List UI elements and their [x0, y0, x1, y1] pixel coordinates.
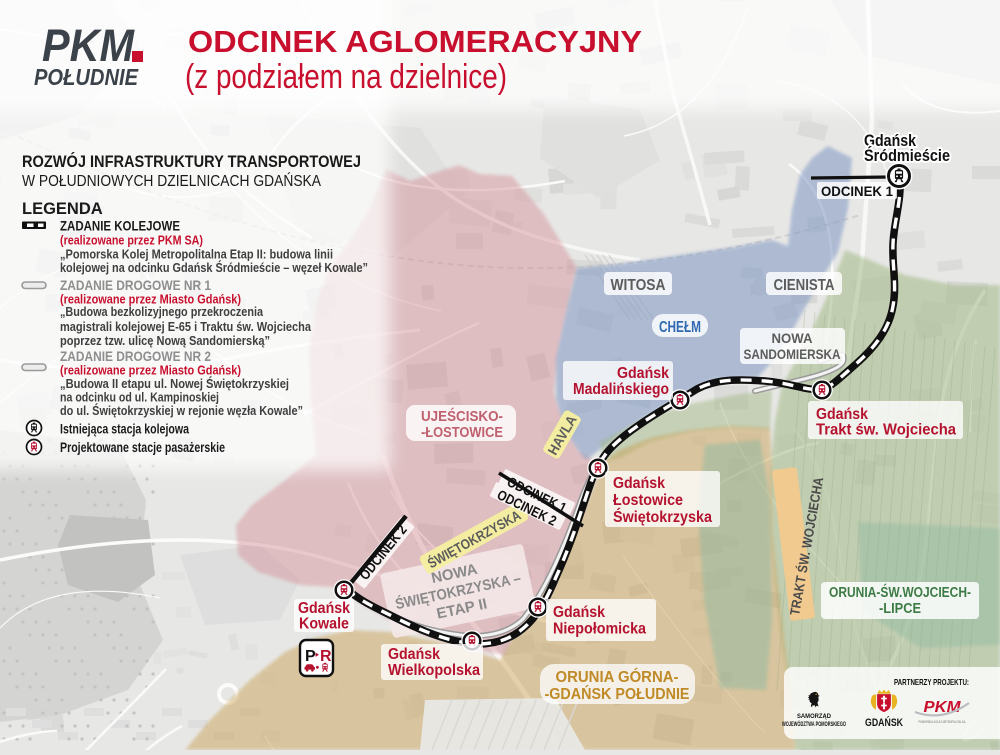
svg-text:LEGENDA: LEGENDA — [22, 200, 103, 218]
svg-text:POMORSKA KOLEJ METROPOLITALNA: POMORSKA KOLEJ METROPOLITALNA — [919, 720, 966, 724]
svg-text:kolejowej na odcinku Gdańsk Śr: kolejowej na odcinku Gdańsk Śródmieście … — [60, 260, 368, 275]
svg-text:WOJEWÓDZTWA POMORSKIEGO: WOJEWÓDZTWA POMORSKIEGO — [782, 720, 846, 728]
svg-text:W POŁUDNIOWYCH DZIELNICACH GDA: W POŁUDNIOWYCH DZIELNICACH GDAŃSKA — [22, 171, 321, 190]
svg-text:UJEŚCISKO-: UJEŚCISKO- — [421, 407, 503, 425]
svg-text:Niepołomicka: Niepołomicka — [553, 621, 646, 638]
svg-text:CHEŁM: CHEŁM — [659, 319, 701, 336]
svg-text:-LIPCE: -LIPCE — [879, 601, 921, 617]
svg-text:NOWA: NOWA — [772, 330, 813, 346]
svg-text:CIENISTA: CIENISTA — [774, 277, 835, 294]
svg-text:Gdańsk: Gdańsk — [816, 406, 868, 423]
svg-text:„Budowa bezkolizyjnego przekro: „Budowa bezkolizyjnego przekroczenia — [60, 304, 264, 319]
svg-text:Gdańsk: Gdańsk — [388, 646, 440, 663]
svg-text:-GDAŃSK POŁUDNIE: -GDAŃSK POŁUDNIE — [545, 686, 690, 703]
svg-text:ZADANIE KOLEJOWE: ZADANIE KOLEJOWE — [60, 218, 180, 234]
svg-text:R: R — [320, 648, 332, 665]
svg-text:-ŁOSTOWICE: -ŁOSTOWICE — [421, 425, 503, 441]
svg-text:Łostowice: Łostowice — [613, 492, 683, 509]
svg-text:Madalińskiego: Madalińskiego — [573, 381, 669, 398]
svg-text:Świętokrzyska: Świętokrzyska — [613, 508, 712, 526]
svg-text:ORUNIA-ŚW.WOJCIECH-: ORUNIA-ŚW.WOJCIECH- — [829, 583, 971, 601]
svg-text:ODCINEK AGLOMERACYJNY: ODCINEK AGLOMERACYJNY — [188, 24, 642, 59]
svg-text:Projektowane stacje pasażerski: Projektowane stacje pasażerskie — [60, 439, 225, 455]
svg-text:PKM: PKM — [924, 699, 962, 716]
svg-text:magistrali kolejowej E-65 i Tr: magistrali kolejowej E-65 i Traktu św. W… — [60, 319, 312, 334]
svg-text:(z podziałem na dzielnice): (z podziałem na dzielnice) — [185, 58, 507, 96]
svg-text:SANDOMIERSKA: SANDOMIERSKA — [744, 346, 841, 362]
svg-text:ODCINEK 1: ODCINEK 1 — [821, 183, 893, 199]
svg-text:do ul. Świętokrzyskiej w rejon: do ul. Świętokrzyskiej w rejonie węzła K… — [60, 403, 303, 418]
svg-text:SAMORZĄD: SAMORZĄD — [797, 714, 832, 720]
svg-text:WITOSA: WITOSA — [611, 277, 666, 294]
svg-text:P: P — [305, 648, 316, 665]
svg-text:POŁUDNIE: POŁUDNIE — [34, 64, 139, 90]
svg-text:Istniejąca stacja kolejowa: Istniejąca stacja kolejowa — [60, 421, 189, 437]
svg-text:Kowale: Kowale — [299, 616, 349, 633]
svg-text:Gdańsk: Gdańsk — [298, 600, 350, 617]
svg-text:GDAŃSK: GDAŃSK — [865, 716, 903, 729]
svg-text:PARTNERZY PROJEKTU:: PARTNERZY PROJEKTU: — [894, 677, 969, 687]
svg-text:Gdańsk: Gdańsk — [613, 475, 665, 492]
svg-text:Trakt św. Wojciecha: Trakt św. Wojciecha — [816, 422, 956, 439]
svg-text:ROZWÓJ INFRASTRUKTURY TRANSPOR: ROZWÓJ INFRASTRUKTURY TRANSPORTOWEJ — [22, 152, 361, 171]
svg-text:Gdańsk: Gdańsk — [617, 365, 669, 382]
svg-text:poprzez tzw. ulicę Nową Sandom: poprzez tzw. ulicę Nową Sandomierską” — [60, 333, 270, 348]
svg-text:Gdańsk: Gdańsk — [553, 604, 605, 621]
svg-text:(realizowane przez PKM SA): (realizowane przez PKM SA) — [60, 233, 203, 248]
svg-text:ORUNIA GÓRNA-: ORUNIA GÓRNA- — [556, 668, 679, 686]
svg-text:Wielkopolska: Wielkopolska — [388, 662, 480, 679]
svg-text:Śródmieście: Śródmieście — [864, 146, 950, 165]
